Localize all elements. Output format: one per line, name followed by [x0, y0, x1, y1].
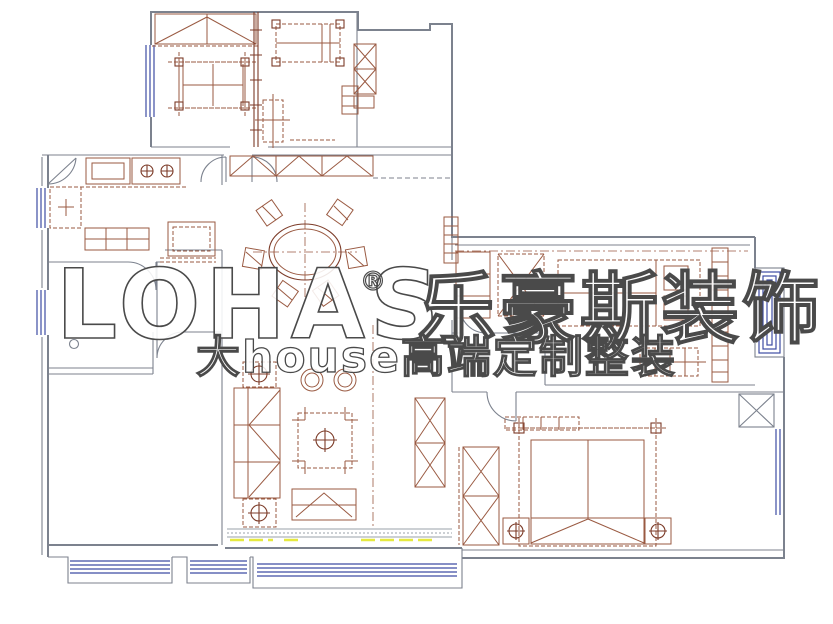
coffee-table — [292, 407, 358, 474]
master-bed — [506, 418, 668, 546]
window-bay-1 — [70, 561, 170, 573]
corridor-door-arc — [252, 157, 277, 182]
wardrobe-a — [152, 14, 258, 46]
sink-counter — [86, 158, 130, 184]
window-kitchen — [37, 188, 45, 228]
master-wardrobe — [459, 447, 499, 545]
watermark-tagline-text: 大house高端定制整装 — [196, 332, 677, 383]
fridge — [50, 187, 81, 228]
living-room-furniture — [234, 362, 445, 527]
nightstand-b — [342, 86, 358, 114]
tv-bench — [292, 489, 356, 520]
base-cabinets — [85, 228, 149, 250]
stove — [132, 158, 180, 184]
watermark-registered-icon: ® — [360, 267, 386, 297]
master-bedroom-furniture — [459, 394, 774, 546]
window-living-balcony — [257, 564, 457, 576]
master-nightstand-left — [503, 518, 529, 544]
bedroom-a-furniture — [152, 14, 258, 118]
kitchen-furniture — [50, 158, 216, 262]
window-bay-2 — [190, 561, 247, 573]
entry-door-arc — [48, 158, 76, 184]
brand-watermark: LOHAS ® 乐豪斯装饰 大house高端定制整装 — [56, 249, 823, 383]
tv-wall-unit — [415, 398, 445, 487]
desk-b — [255, 94, 290, 148]
window-master — [776, 429, 780, 515]
window-bedroom-a — [146, 45, 154, 117]
bed-b — [272, 20, 344, 66]
threshold-band — [227, 529, 452, 540]
floor-plan-image: LOHAS ® 乐豪斯装饰 大house高端定制整装 — [0, 0, 833, 624]
bedroom-b-furniture — [255, 20, 358, 148]
window-bathroom — [37, 290, 45, 335]
master-nightstand-right — [645, 518, 671, 544]
floor-plan-drawing: LOHAS ® 乐豪斯装饰 大house高端定制整装 — [0, 0, 833, 624]
side-table-lamp-bottom — [243, 499, 276, 527]
bed-a — [168, 52, 256, 118]
ac-column-box — [739, 394, 774, 427]
sofa — [234, 388, 280, 498]
